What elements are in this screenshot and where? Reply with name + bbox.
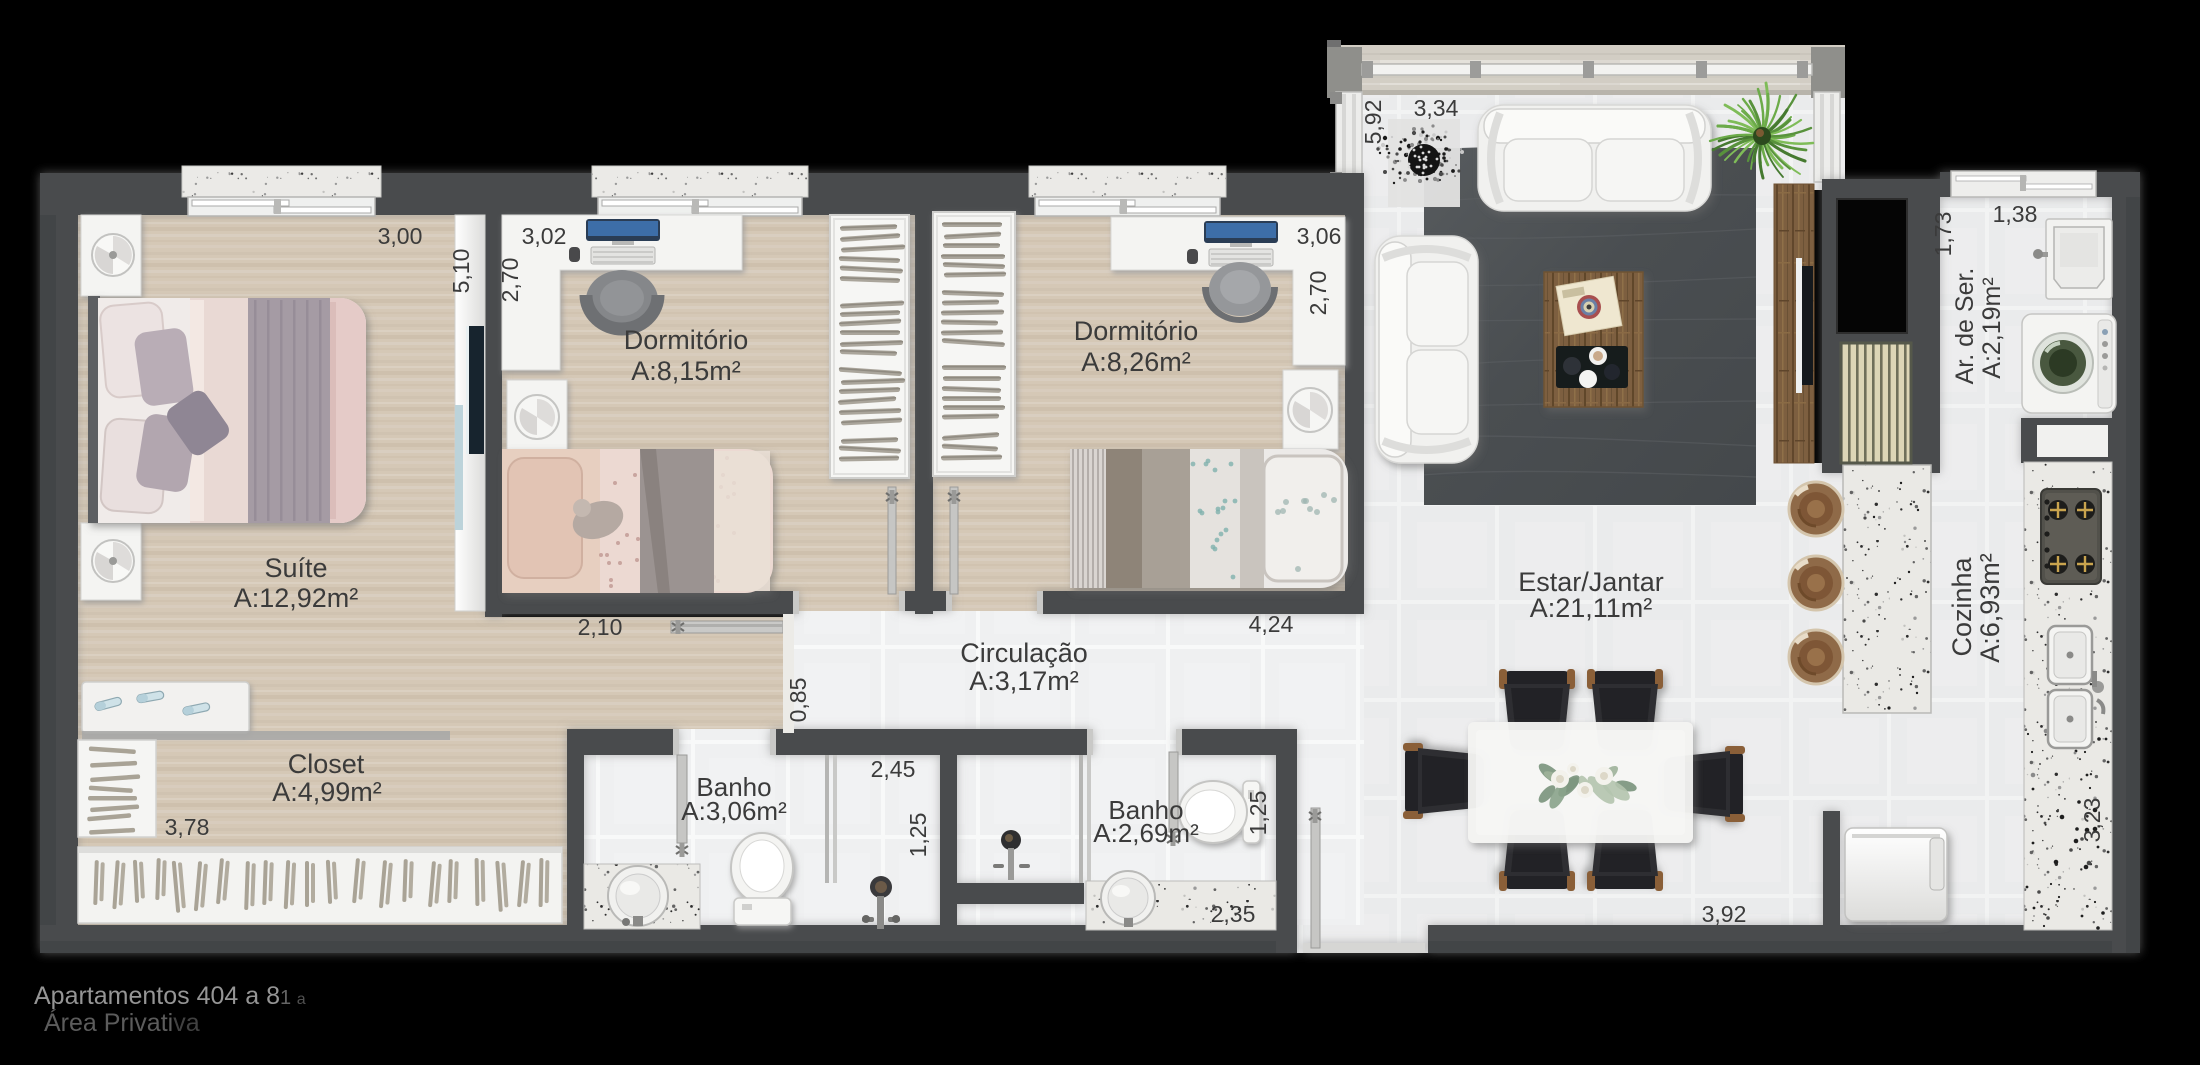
svg-text:3,23: 3,23 bbox=[2079, 798, 2105, 843]
svg-text:3,92: 3,92 bbox=[1702, 901, 1747, 927]
svg-text:3,78: 3,78 bbox=[165, 814, 210, 840]
svg-text:A:3,06m²: A:3,06m² bbox=[681, 796, 787, 826]
svg-text:A:21,11m²: A:21,11m² bbox=[1530, 593, 1653, 623]
svg-text:2,35: 2,35 bbox=[1211, 901, 1256, 927]
svg-text:2,70: 2,70 bbox=[1305, 271, 1331, 316]
svg-text:A:6,93m²: A:6,93m² bbox=[1975, 553, 2005, 663]
svg-text:3,06: 3,06 bbox=[1297, 223, 1342, 249]
svg-text:Cozinha: Cozinha bbox=[1947, 556, 1977, 656]
svg-text:1,38: 1,38 bbox=[1993, 201, 2038, 227]
svg-text:Dormitório: Dormitório bbox=[624, 325, 749, 355]
svg-text:A:3,17m²: A:3,17m² bbox=[969, 666, 1079, 696]
svg-text:3,34: 3,34 bbox=[1414, 95, 1459, 121]
svg-text:4,24: 4,24 bbox=[1249, 611, 1294, 637]
svg-text:3,00: 3,00 bbox=[378, 223, 423, 249]
svg-text:Apartamentos 404 a 81 a: Apartamentos 404 a 81 a bbox=[34, 982, 306, 1010]
svg-text:A:2,19m²: A:2,19m² bbox=[1978, 277, 2006, 378]
svg-text:5,92: 5,92 bbox=[1360, 100, 1386, 145]
svg-text:3,02: 3,02 bbox=[522, 223, 567, 249]
svg-text:A:2,69m²: A:2,69m² bbox=[1093, 818, 1199, 848]
svg-text:Circulação: Circulação bbox=[960, 638, 1088, 668]
svg-text:2,70: 2,70 bbox=[497, 258, 523, 303]
svg-text:Closet: Closet bbox=[288, 749, 365, 779]
svg-text:Área Privativa: Área Privativa bbox=[44, 1008, 200, 1037]
svg-text:0,85: 0,85 bbox=[785, 678, 811, 723]
svg-text:1,25: 1,25 bbox=[905, 813, 931, 858]
svg-text:Suíte: Suíte bbox=[264, 553, 327, 583]
svg-text:A:12,92m²: A:12,92m² bbox=[234, 583, 359, 613]
svg-text:A:4,99m²: A:4,99m² bbox=[272, 777, 382, 807]
svg-text:A:8,26m²: A:8,26m² bbox=[1081, 347, 1191, 377]
svg-text:2,45: 2,45 bbox=[871, 756, 916, 782]
svg-text:5,10: 5,10 bbox=[448, 249, 474, 294]
svg-text:1,73: 1,73 bbox=[1930, 212, 1956, 257]
svg-text:1,25: 1,25 bbox=[1245, 791, 1271, 836]
svg-text:2,10: 2,10 bbox=[578, 614, 623, 640]
svg-text:Ar. de Ser.: Ar. de Ser. bbox=[1951, 268, 1979, 385]
svg-text:A:8,15m²: A:8,15m² bbox=[631, 356, 741, 386]
svg-text:Dormitório: Dormitório bbox=[1074, 316, 1199, 346]
